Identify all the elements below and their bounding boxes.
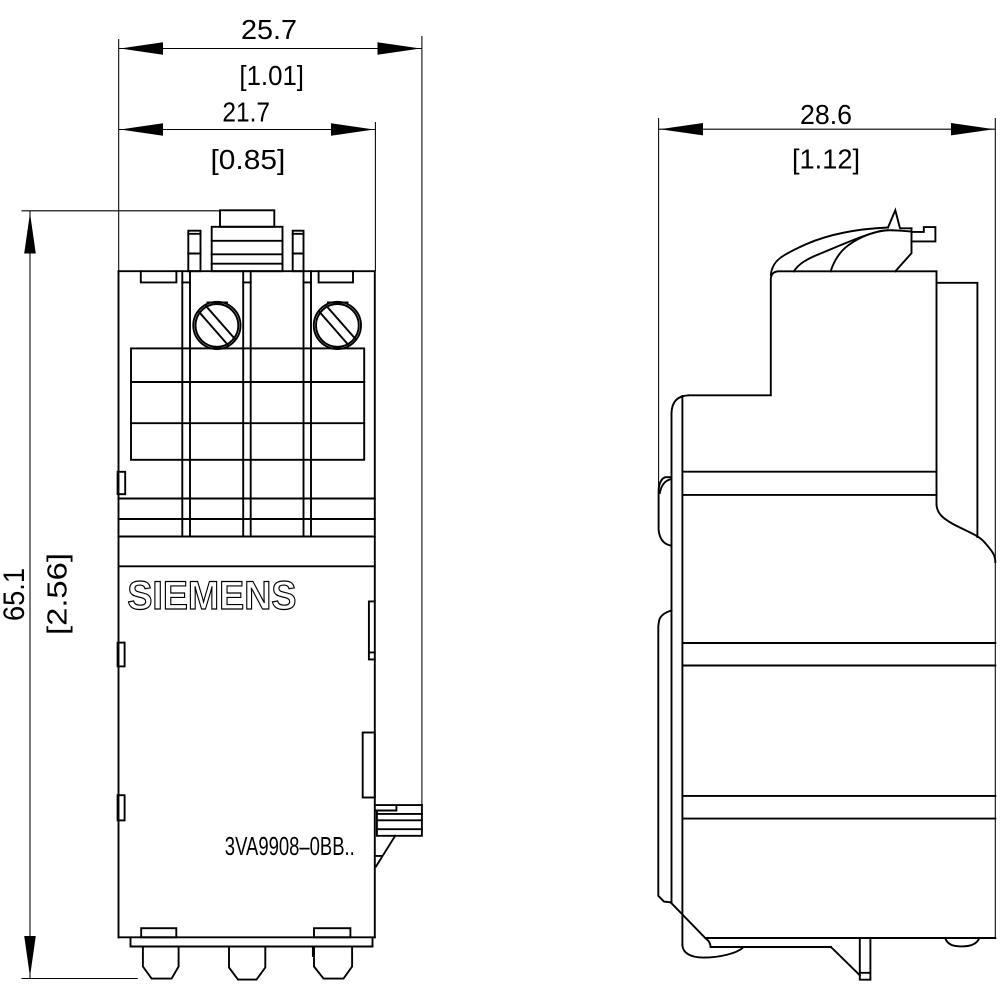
svg-text:[2.56]: [2.56] [42,553,73,635]
svg-text:28.6: 28.6 [800,99,852,130]
svg-text:[1.12]: [1.12] [792,144,860,175]
svg-text:[0.85]: [0.85] [211,144,286,175]
svg-text:SIEMENS: SIEMENS [127,574,296,618]
svg-text:3VA9908–0BB..: 3VA9908–0BB.. [225,831,355,861]
svg-text:21.7: 21.7 [222,97,270,128]
svg-text:25.7: 25.7 [241,14,297,45]
svg-text:65.1: 65.1 [0,568,31,621]
svg-text:[1.01]: [1.01] [239,60,304,91]
